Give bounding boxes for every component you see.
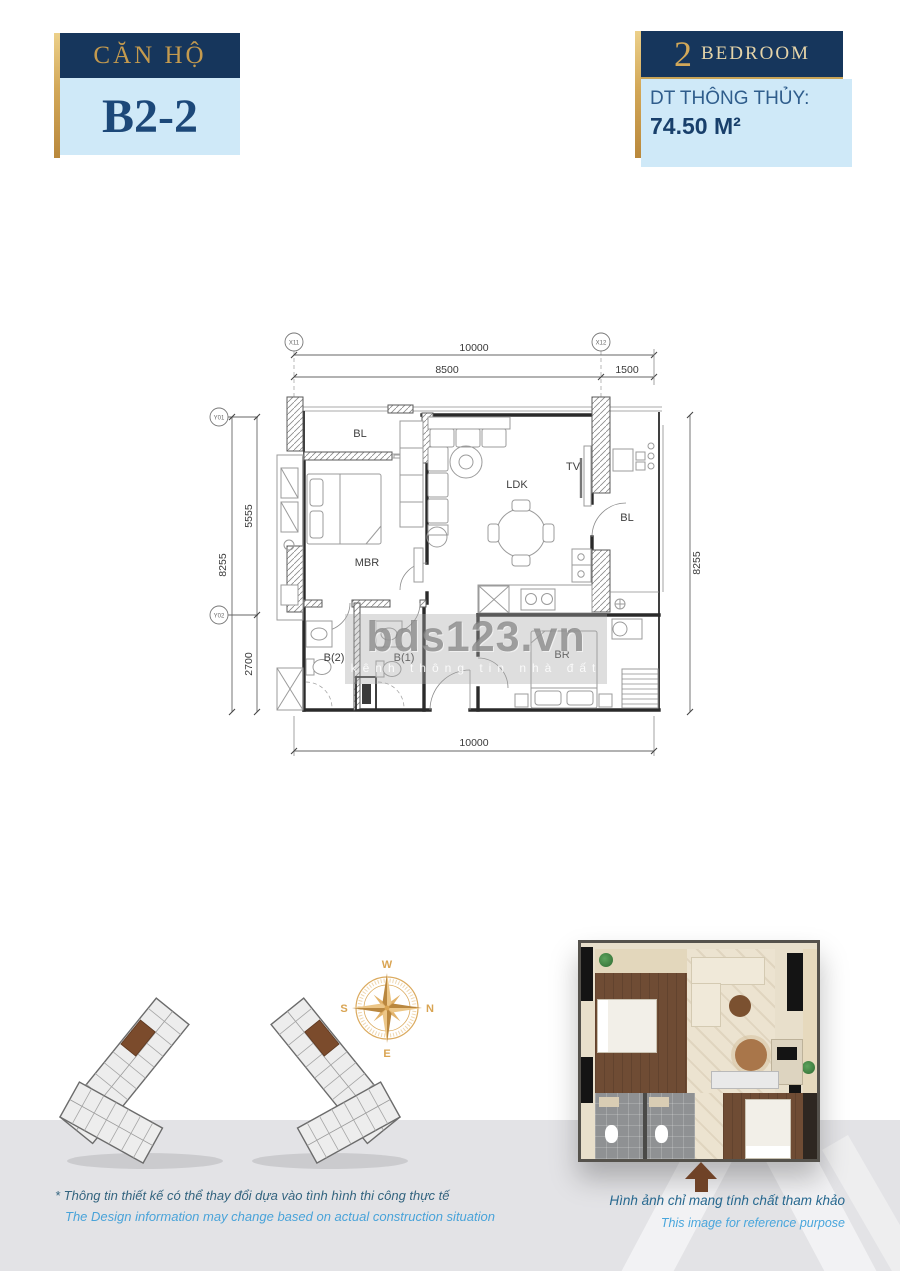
design-disclaimer: * Thông tin thiết kế có thể thay đổi dựa… xyxy=(55,1186,495,1228)
apartment-floorplan-page: { "header_left": { "category": "CĂN HỘ",… xyxy=(0,0,900,1271)
render-dining-table xyxy=(735,1039,767,1071)
render-bath-divider xyxy=(643,1093,647,1159)
reference-arrow-icon xyxy=(685,1162,717,1192)
left-badge-body: B2-2 xyxy=(60,78,240,155)
render-plant-topleft xyxy=(599,953,613,967)
compass-north-label: N xyxy=(426,1003,434,1015)
dim-top-total: 10000 xyxy=(459,342,488,354)
render-bedroom2-bed xyxy=(745,1099,791,1159)
dim-left-lower: 2700 xyxy=(243,652,255,676)
render-vanity-1 xyxy=(599,1097,619,1107)
render-column-3 xyxy=(787,953,803,1011)
render-sofa-side xyxy=(691,983,721,1027)
watermark-brand: bds123.vn xyxy=(345,614,607,660)
dim-top-side: 1500 xyxy=(615,364,639,376)
area-label: DT THÔNG THỦY: xyxy=(650,88,852,110)
render-disclaimer-en: This image for reference purpose xyxy=(609,1213,845,1234)
left-badge-header: CĂN HỘ xyxy=(60,33,240,78)
render-sofa-top xyxy=(691,957,765,985)
render-wardrobe xyxy=(803,1093,817,1159)
dim-top-main: 8500 xyxy=(435,364,459,376)
render-vanity-2 xyxy=(649,1097,669,1107)
render-master-bed xyxy=(597,999,657,1053)
render-column-2 xyxy=(581,1057,593,1103)
apartment-category-label: CĂN HỘ xyxy=(93,42,206,70)
bedroom-type-label: BEDROOM xyxy=(701,43,810,65)
compass-rose: W N E S xyxy=(337,958,437,1058)
render-disclaimer: Hình ảnh chỉ mang tính chất tham khảo Th… xyxy=(609,1190,845,1234)
room-label-living: LDK xyxy=(506,479,528,491)
grid-label-y02: Y02 xyxy=(214,614,225,620)
dim-left-upper: 5555 xyxy=(243,504,255,528)
design-disclaimer-en: The Design information may change based … xyxy=(55,1207,495,1228)
render-right-balcony xyxy=(803,949,817,1099)
render-toilet-2 xyxy=(655,1125,668,1143)
render-plant-right xyxy=(802,1061,815,1074)
render-column-1 xyxy=(581,947,593,1001)
unit-code: B2-2 xyxy=(60,78,240,155)
watermark-tagline: kênh thông tin nhà đất xyxy=(345,661,607,675)
bedroom-count: 2 xyxy=(674,33,692,75)
render-toilet-1 xyxy=(605,1125,618,1143)
right-badge-header: 2 BEDROOM xyxy=(641,31,843,79)
site-watermark: bds123.vn kênh thông tin nhà đất xyxy=(345,614,607,684)
area-value: 74.50 M² xyxy=(650,113,852,140)
design-disclaimer-vi: * Thông tin thiết kế có thể thay đổi dựa… xyxy=(55,1186,495,1207)
dim-right-total: 8255 xyxy=(691,551,703,575)
render-coffee-table xyxy=(729,995,751,1017)
compass-west-label: W xyxy=(382,959,393,971)
render-hallway xyxy=(695,1093,723,1159)
reference-render-image xyxy=(578,940,820,1162)
room-label-balcony-top: BL xyxy=(353,428,366,440)
room-label-balcony-right: BL xyxy=(620,512,633,524)
room-label-tv: TV xyxy=(566,461,581,473)
render-island-sink xyxy=(711,1071,779,1089)
compass-east-label: E xyxy=(383,1048,390,1058)
building-plate-left xyxy=(60,998,189,1163)
render-stove xyxy=(777,1047,797,1060)
floorplan-drawing: X11 X12 Y01 Y02 10000 8500 1500 8255 5 xyxy=(185,325,720,775)
grid-label-x11: X11 xyxy=(289,341,300,347)
room-label-bath2: B(2) xyxy=(324,652,345,664)
dim-bottom-total: 10000 xyxy=(459,737,488,749)
room-label-master-bedroom: MBR xyxy=(355,557,380,569)
grid-label-x12: X12 xyxy=(596,341,607,347)
right-badge-body: DT THÔNG THỦY: 74.50 M² xyxy=(641,79,852,167)
compass-south-label: S xyxy=(340,1003,347,1015)
grid-label-y01: Y01 xyxy=(214,416,225,422)
render-disclaimer-vi: Hình ảnh chỉ mang tính chất tham khảo xyxy=(609,1190,845,1213)
dim-left-total: 8255 xyxy=(217,553,229,577)
